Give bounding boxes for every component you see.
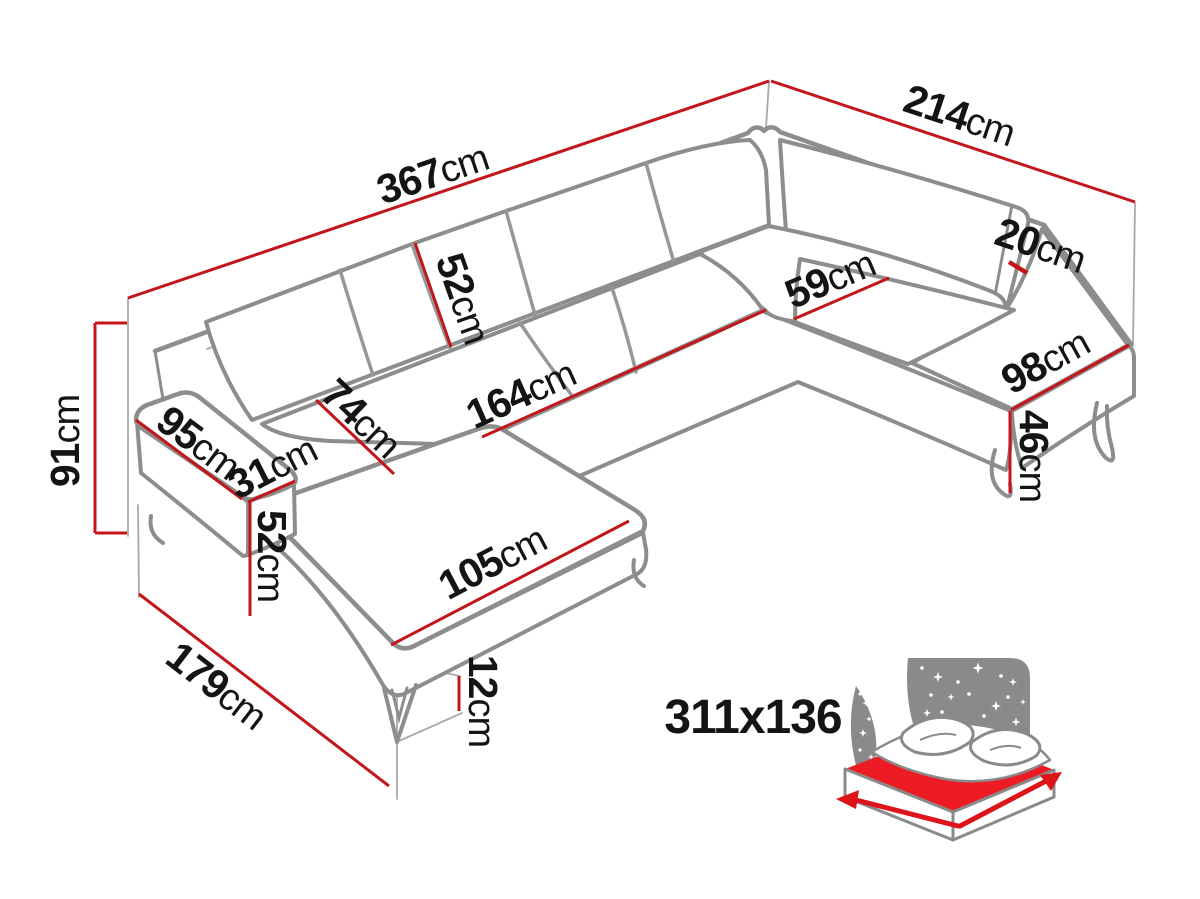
dim-total-height: 91cm xyxy=(42,323,127,533)
star-dot xyxy=(858,748,861,751)
star-dot xyxy=(929,693,933,697)
star-dot xyxy=(999,674,1003,678)
sleeping-info: 311x136 xyxy=(664,658,1062,840)
dimension-label: 12cm xyxy=(460,655,506,747)
star-dot xyxy=(982,714,986,718)
dimension-label: 46cm xyxy=(1011,410,1057,502)
star-dot xyxy=(1006,695,1010,699)
pillow xyxy=(971,730,1040,766)
sofa-leg xyxy=(151,516,164,543)
dimension-label: 91cm xyxy=(42,395,88,487)
guide-floor-leg xyxy=(399,713,462,741)
sofa-back-left-edge xyxy=(155,351,163,399)
star-dot xyxy=(858,692,861,695)
sleeping-size-label: 311x136 xyxy=(664,691,841,744)
star-dot xyxy=(967,692,971,696)
sofa-drawing xyxy=(136,127,1134,742)
star-dot xyxy=(867,717,870,720)
diagram-canvas: 367cm 214cm 91cm 52cm 59cm 20cm 98cm xyxy=(0,0,1200,899)
guide-apex xyxy=(766,81,769,128)
sofa-bed-sleeping-area-icon xyxy=(836,658,1062,840)
dim-seat-height: 46cm xyxy=(1010,410,1057,502)
guide-right-end xyxy=(1133,203,1135,346)
dim-leg-height: 12cm xyxy=(459,655,506,747)
guide-chaise-back-corner xyxy=(138,505,139,597)
dimension-label: 52cm xyxy=(249,510,295,602)
star-dot xyxy=(956,680,960,684)
star-dot xyxy=(920,666,924,670)
dimension-label: 367cm xyxy=(371,133,494,213)
dim-armrest-height: 52cm xyxy=(249,502,295,616)
star-dot xyxy=(940,710,944,714)
sofa-dimension-diagram: 367cm 214cm 91cm 52cm 59cm 20cm 98cm xyxy=(0,0,1200,899)
